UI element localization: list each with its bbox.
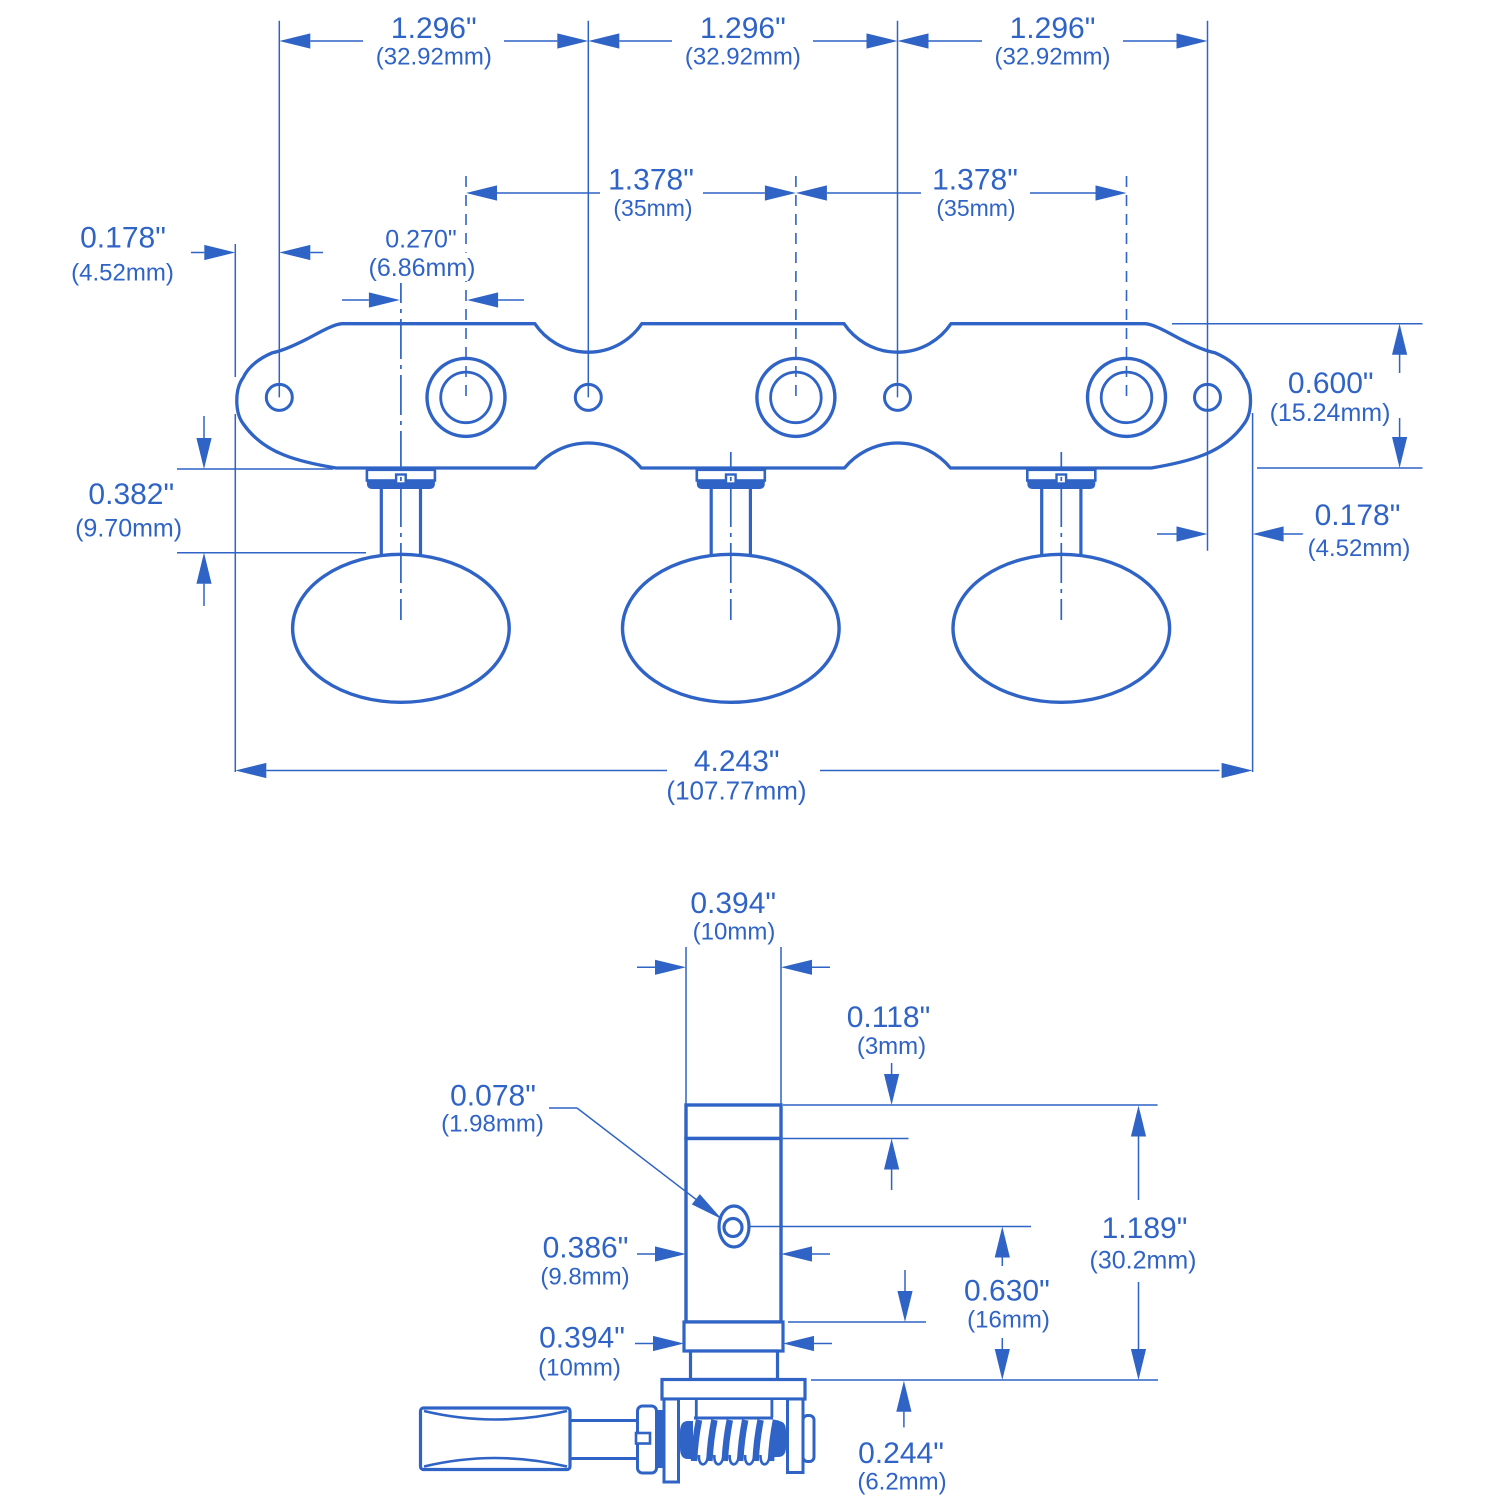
svg-text:1.378": 1.378" <box>932 164 1018 197</box>
svg-text:(4.52mm): (4.52mm) <box>71 260 174 287</box>
svg-text:(16mm): (16mm) <box>967 1307 1050 1334</box>
svg-text:(35mm): (35mm) <box>936 195 1015 221</box>
svg-text:0.394": 0.394" <box>539 1322 625 1355</box>
svg-text:0.600": 0.600" <box>1288 367 1374 400</box>
svg-text:0.394": 0.394" <box>690 887 776 920</box>
svg-text:0.630": 0.630" <box>964 1275 1050 1308</box>
svg-text:(1.98mm): (1.98mm) <box>441 1111 544 1138</box>
svg-text:(9.8mm): (9.8mm) <box>540 1264 629 1291</box>
svg-text:4.243": 4.243" <box>694 745 780 778</box>
svg-text:(6.86mm): (6.86mm) <box>369 254 476 282</box>
svg-text:0.244": 0.244" <box>858 1437 944 1470</box>
svg-text:0.386": 0.386" <box>543 1232 629 1265</box>
svg-text:0.270": 0.270" <box>385 226 456 254</box>
svg-text:(6.2mm): (6.2mm) <box>857 1469 946 1496</box>
svg-text:1.189": 1.189" <box>1102 1212 1188 1245</box>
svg-text:1.296": 1.296" <box>1010 12 1096 45</box>
svg-text:(9.70mm): (9.70mm) <box>75 515 182 543</box>
svg-text:(32.92mm): (32.92mm) <box>994 44 1110 71</box>
svg-text:0.178": 0.178" <box>1315 499 1401 532</box>
svg-text:(30.2mm): (30.2mm) <box>1090 1247 1197 1275</box>
svg-text:(15.24mm): (15.24mm) <box>1270 399 1391 427</box>
svg-text:(32.92mm): (32.92mm) <box>685 44 801 71</box>
svg-text:(3mm): (3mm) <box>857 1033 926 1060</box>
svg-text:1.296": 1.296" <box>700 12 786 45</box>
svg-text:0.118": 0.118" <box>847 1001 931 1034</box>
svg-text:1.296": 1.296" <box>391 12 477 45</box>
svg-text:0.382": 0.382" <box>88 478 174 511</box>
svg-text:(4.52mm): (4.52mm) <box>1308 535 1411 562</box>
svg-text:0.178": 0.178" <box>80 222 166 255</box>
svg-text:(10mm): (10mm) <box>693 919 776 946</box>
svg-text:0.078": 0.078" <box>450 1080 536 1113</box>
svg-text:1.378": 1.378" <box>608 164 694 197</box>
svg-text:(32.92mm): (32.92mm) <box>376 44 492 71</box>
svg-text:(107.77mm): (107.77mm) <box>666 776 806 806</box>
svg-text:(10mm): (10mm) <box>538 1355 621 1382</box>
svg-text:(35mm): (35mm) <box>613 195 692 221</box>
